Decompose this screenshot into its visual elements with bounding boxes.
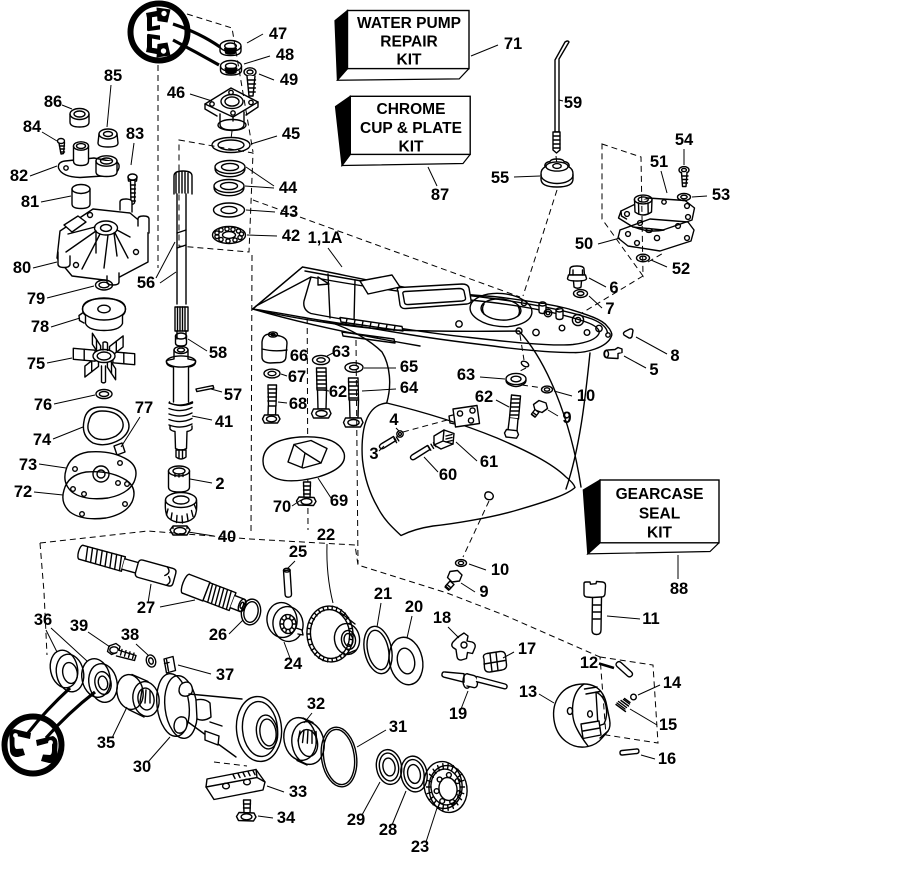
svg-text:52: 52 — [672, 260, 690, 278]
svg-text:16: 16 — [658, 750, 676, 768]
svg-text:73: 73 — [19, 456, 37, 474]
svg-text:2: 2 — [215, 475, 224, 493]
svg-text:64: 64 — [400, 379, 419, 397]
svg-text:11: 11 — [642, 610, 659, 628]
svg-text:45: 45 — [282, 125, 300, 143]
svg-text:54: 54 — [675, 131, 694, 149]
svg-text:81: 81 — [21, 193, 39, 211]
svg-text:15: 15 — [659, 716, 677, 734]
svg-text:47: 47 — [269, 25, 287, 43]
svg-text:76: 76 — [34, 396, 52, 414]
svg-text:63: 63 — [457, 366, 475, 384]
svg-text:77: 77 — [135, 399, 153, 417]
svg-text:8: 8 — [670, 347, 679, 365]
svg-text:82: 82 — [10, 167, 28, 185]
svg-text:27: 27 — [137, 599, 155, 617]
svg-text:53: 53 — [712, 186, 730, 204]
svg-text:24: 24 — [284, 655, 303, 673]
svg-text:GEARCASE: GEARCASE — [616, 486, 704, 503]
svg-text:61: 61 — [480, 453, 498, 471]
svg-text:33: 33 — [289, 783, 307, 801]
svg-text:9: 9 — [479, 583, 488, 601]
svg-text:26: 26 — [209, 626, 227, 644]
svg-text:50: 50 — [575, 235, 593, 253]
svg-text:14: 14 — [663, 674, 682, 692]
svg-text:86: 86 — [44, 93, 62, 111]
svg-text:CUP & PLATE: CUP & PLATE — [360, 120, 462, 137]
svg-text:28: 28 — [379, 821, 397, 839]
svg-text:79: 79 — [27, 290, 45, 308]
svg-text:43: 43 — [280, 203, 298, 221]
svg-text:38: 38 — [121, 626, 139, 644]
svg-text:KIT: KIT — [399, 139, 425, 156]
svg-text:37: 37 — [216, 666, 234, 684]
svg-text:34: 34 — [277, 809, 296, 827]
svg-text:51: 51 — [650, 153, 668, 171]
svg-text:18: 18 — [433, 609, 451, 627]
svg-text:46: 46 — [167, 84, 185, 102]
svg-text:71: 71 — [504, 35, 522, 53]
svg-text:31: 31 — [389, 718, 407, 736]
svg-text:12: 12 — [580, 654, 598, 672]
svg-text:60: 60 — [439, 466, 457, 484]
svg-text:CHROME: CHROME — [377, 101, 446, 118]
svg-text:56: 56 — [137, 274, 155, 292]
svg-text:6: 6 — [609, 279, 618, 297]
svg-text:20: 20 — [405, 598, 423, 616]
svg-text:84: 84 — [23, 118, 42, 136]
svg-text:63: 63 — [332, 343, 350, 361]
svg-text:30: 30 — [133, 758, 151, 776]
svg-text:74: 74 — [33, 431, 52, 449]
svg-text:88: 88 — [670, 580, 688, 598]
svg-text:39: 39 — [70, 617, 88, 635]
svg-text:78: 78 — [31, 318, 49, 336]
svg-text:41: 41 — [215, 413, 233, 431]
svg-text:10: 10 — [491, 561, 509, 579]
svg-text:13: 13 — [519, 683, 537, 701]
svg-text:KIT: KIT — [647, 525, 673, 542]
svg-text:57: 57 — [224, 386, 242, 404]
svg-text:19: 19 — [449, 705, 467, 723]
svg-text:KIT: KIT — [397, 52, 423, 69]
svg-text:3: 3 — [369, 445, 378, 463]
svg-text:59: 59 — [564, 94, 582, 112]
svg-text:42: 42 — [282, 227, 300, 245]
svg-text:72: 72 — [14, 483, 32, 501]
svg-text:22: 22 — [317, 526, 335, 544]
svg-text:WATER PUMP: WATER PUMP — [357, 15, 461, 32]
svg-text:58: 58 — [209, 344, 227, 362]
svg-text:7: 7 — [605, 300, 614, 318]
svg-text:65: 65 — [400, 358, 418, 376]
svg-text:48: 48 — [276, 46, 294, 64]
svg-text:21: 21 — [374, 585, 392, 603]
svg-text:17: 17 — [518, 640, 536, 658]
svg-text:10: 10 — [577, 387, 595, 405]
svg-text:SEAL: SEAL — [639, 506, 680, 523]
svg-text:25: 25 — [289, 543, 307, 561]
svg-text:55: 55 — [491, 169, 509, 187]
svg-text:49: 49 — [280, 71, 298, 89]
svg-text:68: 68 — [289, 395, 307, 413]
svg-text:80: 80 — [13, 259, 31, 277]
svg-text:62: 62 — [329, 383, 347, 401]
svg-text:9: 9 — [562, 409, 571, 427]
svg-text:67: 67 — [288, 368, 306, 386]
svg-text:75: 75 — [27, 355, 45, 373]
svg-text:85: 85 — [104, 67, 122, 85]
svg-text:83: 83 — [126, 125, 144, 143]
svg-text:5: 5 — [649, 361, 658, 379]
svg-text:32: 32 — [307, 695, 325, 713]
svg-text:62: 62 — [475, 388, 493, 406]
svg-text:69: 69 — [330, 492, 348, 510]
svg-text:44: 44 — [279, 179, 298, 197]
svg-text:1,1A: 1,1A — [308, 229, 343, 247]
svg-text:36: 36 — [34, 611, 52, 629]
svg-text:66: 66 — [290, 347, 308, 365]
svg-text:REPAIR: REPAIR — [380, 34, 437, 51]
svg-text:70: 70 — [273, 498, 291, 516]
svg-text:4: 4 — [389, 411, 399, 429]
svg-text:87: 87 — [431, 186, 449, 204]
